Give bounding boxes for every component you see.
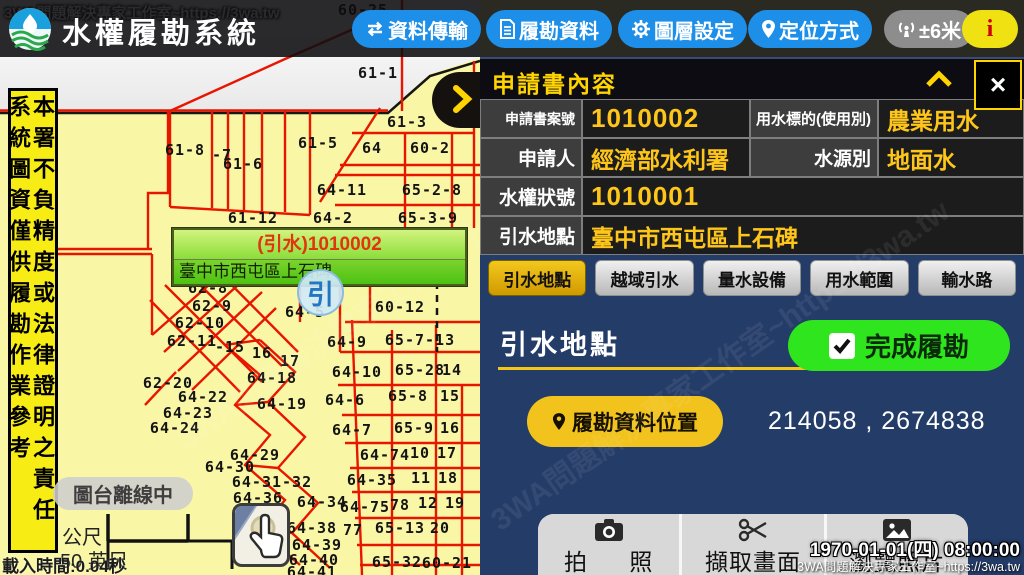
panel-collapse-arrow-button[interactable] [432, 72, 480, 128]
chevron-right-icon [449, 84, 475, 114]
tab-water-use-scope[interactable]: 用水範圍 [810, 260, 908, 296]
parcel-label: 17 [437, 444, 457, 462]
parcel-label: 64-18 [247, 369, 297, 387]
parcel-label: 65-28 [395, 361, 445, 379]
parcel-label: 20 [430, 519, 450, 537]
water-source-value: 地面水 [878, 138, 1024, 177]
parcel-label: 64-11 [317, 181, 367, 199]
applicant-value: 經濟部水利署 [582, 138, 750, 177]
parcel-label: 64-75 [340, 498, 390, 516]
scissors-icon [738, 518, 768, 542]
disclaimer-text-left: 系統圖資僅供履勘作業參考 [6, 95, 30, 546]
app-window: 60-2561-161-361-8-761-661-56460-264-1165… [0, 0, 1024, 575]
parcel-label: 17 [280, 352, 300, 370]
parcel-label: 64-9 [327, 333, 367, 351]
tab-diversion-location[interactable]: 引水地點 [488, 260, 586, 296]
info-label: i [987, 16, 994, 43]
app-title: 水權履勘系統 [62, 10, 260, 52]
complete-survey-label: 完成履勘 [865, 327, 969, 364]
survey-record-label: 履勘資料 [519, 15, 599, 44]
close-panel-button[interactable]: × [974, 60, 1022, 110]
offline-status-badge: 圖台離線中 [53, 477, 193, 510]
gps-accuracy-label: ±6米 [919, 15, 961, 44]
parcel-label: 16 [252, 344, 272, 362]
load-time-text: 載入時間:0.04秒 [2, 552, 126, 575]
parcel-label: 64-19 [257, 395, 307, 413]
parcel-label: 61-5 [298, 134, 338, 152]
parcel-label: 64-35 [347, 471, 397, 489]
parcel-label: 65-32 [372, 553, 422, 571]
license-number-value: 1010001 [582, 177, 1024, 216]
panel-title: 申請書內容 [492, 65, 617, 99]
parcel-label: 64-7 [332, 421, 372, 439]
layer-settings-button[interactable]: 圖層設定 [618, 10, 747, 48]
coordinates-value: 214058 , 2674838 [768, 407, 986, 436]
survey-data-position-label: 履勘資料位置 [572, 407, 698, 437]
parcel-label: 15 [440, 387, 460, 405]
parcel-label: 65-9 [394, 419, 434, 437]
watermark-bottom-right: 3WA問題解決專家工作室~https://3wa.tw [797, 556, 1020, 575]
license-number-label: 水權狀號 [480, 177, 582, 216]
complete-survey-button[interactable]: 完成履勘 [788, 320, 1010, 371]
parcel-label: 65-3-9 [398, 209, 458, 227]
case-number-value: 1010002 [582, 99, 750, 138]
collapse-panel-button[interactable] [924, 69, 954, 91]
panel-header: 申請書內容 × [480, 57, 1024, 99]
panel-body: 3WA問題解決專家工作室~https://3wa.tw 引水地點 完成履勘 履勘… [480, 301, 1024, 575]
parcel-label: 61-12 [228, 209, 278, 227]
parcel-label: 65-7-13 [385, 331, 455, 349]
map-disclaimer: 本署不負精度或法律證明之責任 系統圖資僅供履勘作業參考 [8, 88, 58, 553]
positioning-mode-button[interactable]: 定位方式 [748, 10, 872, 48]
parcel-label: 64-24 [150, 419, 200, 437]
location-pin-icon [552, 412, 566, 431]
parcel-label: 64-10 [332, 363, 382, 381]
app-logo-icon [8, 7, 52, 51]
parcel-label: 78 [390, 496, 410, 514]
tooltip-title: (引水)1010002 [174, 230, 465, 260]
case-number-label: 申請書案號 [480, 99, 582, 138]
parcel-label: 61-6 [223, 155, 263, 173]
diversion-point-marker[interactable]: 引 [297, 269, 344, 316]
parcel-label: 64-2 [313, 209, 353, 227]
chevron-up-icon [925, 70, 953, 88]
checkbox-check-icon [829, 333, 855, 359]
parcel-label: 64 [362, 139, 382, 157]
cadastral-map[interactable]: 60-2561-161-361-8-761-661-56460-264-1165… [0, 0, 480, 575]
top-bar: 水權履勘系統 資料傳輸 履勘資料 圖層設定 [0, 0, 1024, 57]
parcel-label: 11 [411, 469, 431, 487]
parcel-label: 64-41 [287, 563, 337, 575]
parcel-label: 64-38 [287, 519, 337, 537]
gps-signal-icon [897, 20, 916, 39]
application-form-table: 申請書案號 1010002 用水標的(使用別) 農業用水 申請人 經濟部水利署 … [480, 99, 1024, 255]
capture-screen-label: 擷取畫面 [705, 543, 801, 575]
info-button[interactable]: i [962, 10, 1018, 48]
parcel-label: 61-1 [358, 64, 398, 82]
location-pin-icon [761, 19, 776, 39]
diversion-location-value: 臺中市西屯區上石碑 [582, 216, 1024, 255]
tab-conveyance-route[interactable]: 輸水路 [918, 260, 1016, 296]
section-title: 引水地點 [500, 323, 620, 362]
parcel-label: 65-8 [388, 387, 428, 405]
parcel-label: 65-2-8 [402, 181, 462, 199]
positioning-mode-label: 定位方式 [779, 15, 859, 44]
parcel-label: 64-6 [325, 391, 365, 409]
sync-icon [365, 20, 385, 38]
diversion-location-label: 引水地點 [480, 216, 582, 255]
survey-data-position-button[interactable]: 履勘資料位置 [527, 396, 723, 447]
water-source-label: 水源別 [750, 138, 878, 177]
disclaimer-text-right: 本署不負精度或法律證明之責任 [30, 95, 54, 546]
document-icon [499, 19, 516, 39]
touch-pan-tool-button[interactable] [232, 503, 290, 567]
parcel-label: 61-8 [165, 141, 205, 159]
parcel-label: 60-21 [422, 554, 472, 572]
gps-accuracy-button[interactable]: ±6米 [884, 10, 974, 48]
parcel-label: 16 [440, 419, 460, 437]
detail-tabs: 引水地點 越域引水 量水設備 用水範圍 輸水路 [480, 255, 1024, 301]
parcel-label: 62-11 [167, 332, 217, 350]
parcel-label: 10 [410, 444, 430, 462]
take-photo-button[interactable]: 拍 照 [538, 514, 682, 575]
parcel-label: 60-12 [375, 298, 425, 316]
section-underline [498, 367, 850, 370]
camera-icon [594, 518, 624, 542]
tab-cross-basin-diversion[interactable]: 越域引水 [595, 260, 693, 296]
parcel-label: 62-10 [175, 314, 225, 332]
data-transfer-label: 資料傳輸 [388, 15, 468, 44]
parcel-label: 14 [442, 361, 462, 379]
parcel-label: 61-3 [387, 113, 427, 131]
parcel-label: 65-13 [375, 519, 425, 537]
parcel-label: 60-2 [410, 139, 450, 157]
layer-settings-label: 圖層設定 [654, 15, 734, 44]
parcel-label: 12 [418, 494, 438, 512]
survey-record-button[interactable]: 履勘資料 [486, 10, 612, 48]
application-detail-panel: 申請書內容 × 申請書案號 1010002 用水標的(使用別) 農業用水 申請人… [480, 57, 1024, 575]
applicant-label: 申請人 [480, 138, 582, 177]
hand-pointer-icon [235, 506, 287, 564]
parcel-label: 77 [343, 521, 363, 539]
parcel-label: 64-74 [360, 446, 410, 464]
marker-label: 引 [307, 273, 334, 312]
data-transfer-button[interactable]: 資料傳輸 [352, 10, 481, 48]
gear-icon [631, 19, 651, 39]
tab-metering-equipment[interactable]: 量水設備 [703, 260, 801, 296]
parcel-label: -15 [215, 338, 245, 356]
take-photo-label: 拍 照 [538, 543, 679, 575]
water-purpose-label: 用水標的(使用別) [750, 99, 878, 138]
parcel-label: 62-9 [192, 297, 232, 315]
parcel-label: 18 [438, 469, 458, 487]
parcel-label: 19 [445, 494, 465, 512]
